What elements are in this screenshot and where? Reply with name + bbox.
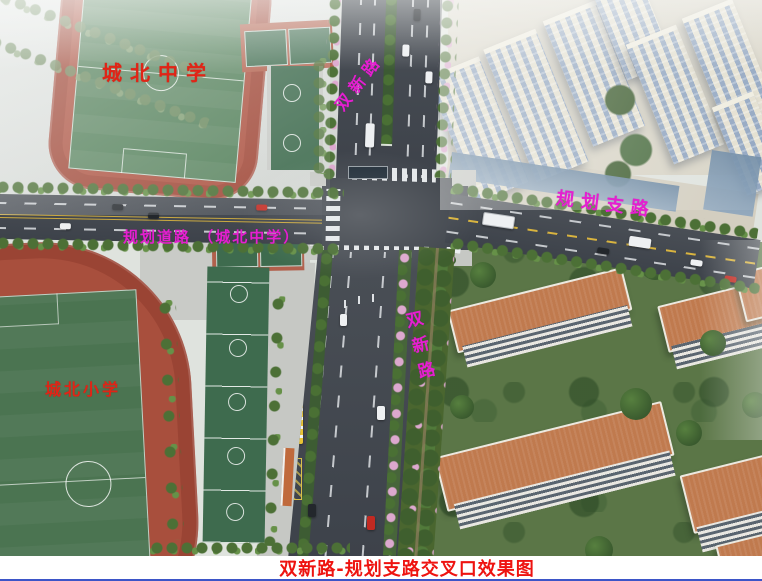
caption-bar: 双新路-规划支路交叉口效果图 [0, 556, 762, 581]
court-circle [228, 393, 246, 411]
field-center-circle [64, 460, 112, 508]
haze-center [240, 150, 480, 280]
planned-road-label: 规划道路 （城北中学） [123, 226, 300, 247]
tree [450, 395, 474, 419]
car [308, 504, 316, 517]
car [340, 314, 347, 326]
bus [482, 212, 516, 230]
court-circle [229, 339, 247, 357]
lane-arrow [344, 300, 346, 308]
lane-arrow [358, 296, 360, 304]
bus [365, 123, 375, 147]
footpath [414, 248, 439, 559]
lane-arrow [372, 294, 374, 302]
car [367, 516, 375, 530]
court-circle [226, 503, 244, 521]
haze-lawn-right [700, 240, 762, 440]
tree-row-bottom-left [150, 541, 350, 555]
caption-text: 双新路-规划支路交叉口效果图 [227, 555, 534, 581]
court-circle [227, 447, 245, 465]
soccer-field [0, 289, 155, 581]
rendering-canvas: 城北中学 城北小学 双新路 规划道路 （城北中学） 规划支路 双新路 双新路-规… [0, 0, 762, 581]
car [425, 71, 432, 83]
car [60, 223, 71, 229]
basketball-court-column [203, 266, 270, 543]
haze-right [440, 0, 762, 210]
primary-school-label: 城北小学 [45, 376, 121, 400]
tree [620, 388, 652, 420]
tree [676, 420, 702, 446]
goal-box [0, 293, 59, 328]
middle-school-label: 城北中学 [102, 57, 214, 86]
court-circle [230, 285, 248, 303]
car [377, 406, 385, 420]
truck [628, 236, 651, 249]
